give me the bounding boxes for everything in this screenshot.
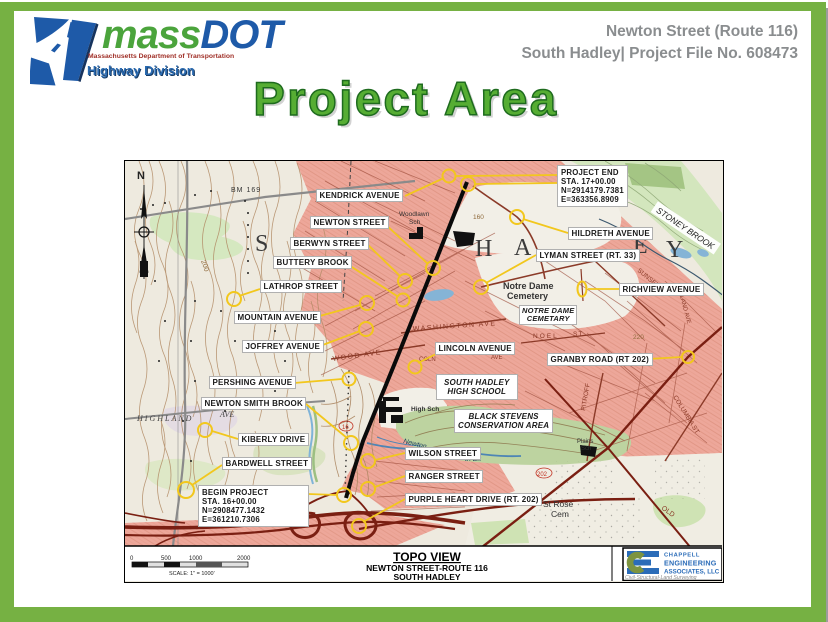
svg-text:High Sch: High Sch <box>411 406 439 413</box>
svg-text:ENGINEERING: ENGINEERING <box>664 559 717 568</box>
svg-text:Civil·Structural·Land Surveyin: Civil·Structural·Land Surveying <box>625 575 697 581</box>
svg-text:2000: 2000 <box>237 556 251 562</box>
svg-text:St Rose: St Rose <box>543 499 574 509</box>
svg-text:AVE: AVE <box>491 355 503 361</box>
svg-text:500: 500 <box>161 556 172 562</box>
svg-text:160: 160 <box>473 214 484 221</box>
svg-text:ST: ST <box>573 331 583 338</box>
svg-text:Y: Y <box>666 237 683 263</box>
svg-text:TOPO VIEW: TOPO VIEW <box>393 550 461 564</box>
svg-text:NOEL: NOEL <box>533 333 559 340</box>
svg-text:Cem: Cem <box>551 509 569 519</box>
svg-text:Woodlawn: Woodlawn <box>399 211 430 218</box>
svg-text:Notre Dame: Notre Dame <box>503 281 554 291</box>
svg-text:HIGHLAND: HIGHLAND <box>136 414 193 423</box>
svg-text:S: S <box>255 231 268 257</box>
svg-text:H: H <box>475 236 492 262</box>
svg-text:A: A <box>514 235 532 261</box>
svg-text:16: 16 <box>342 425 349 431</box>
svg-text:Plains: Plains <box>577 439 593 445</box>
svg-text:SOUTH HADLEY: SOUTH HADLEY <box>393 572 460 581</box>
svg-text:Sch: Sch <box>581 446 591 452</box>
svg-text:202: 202 <box>537 472 548 478</box>
svg-text:BM 169: BM 169 <box>231 187 261 194</box>
svg-text:Sch: Sch <box>409 219 421 226</box>
svg-text:1000: 1000 <box>189 556 203 562</box>
svg-text:N: N <box>137 170 145 182</box>
svg-text:Cemetery: Cemetery <box>507 291 548 301</box>
svg-text:SCALE: 1" = 1000': SCALE: 1" = 1000' <box>169 571 215 577</box>
svg-text:220: 220 <box>633 334 644 341</box>
svg-text:AVE: AVE <box>219 410 234 419</box>
